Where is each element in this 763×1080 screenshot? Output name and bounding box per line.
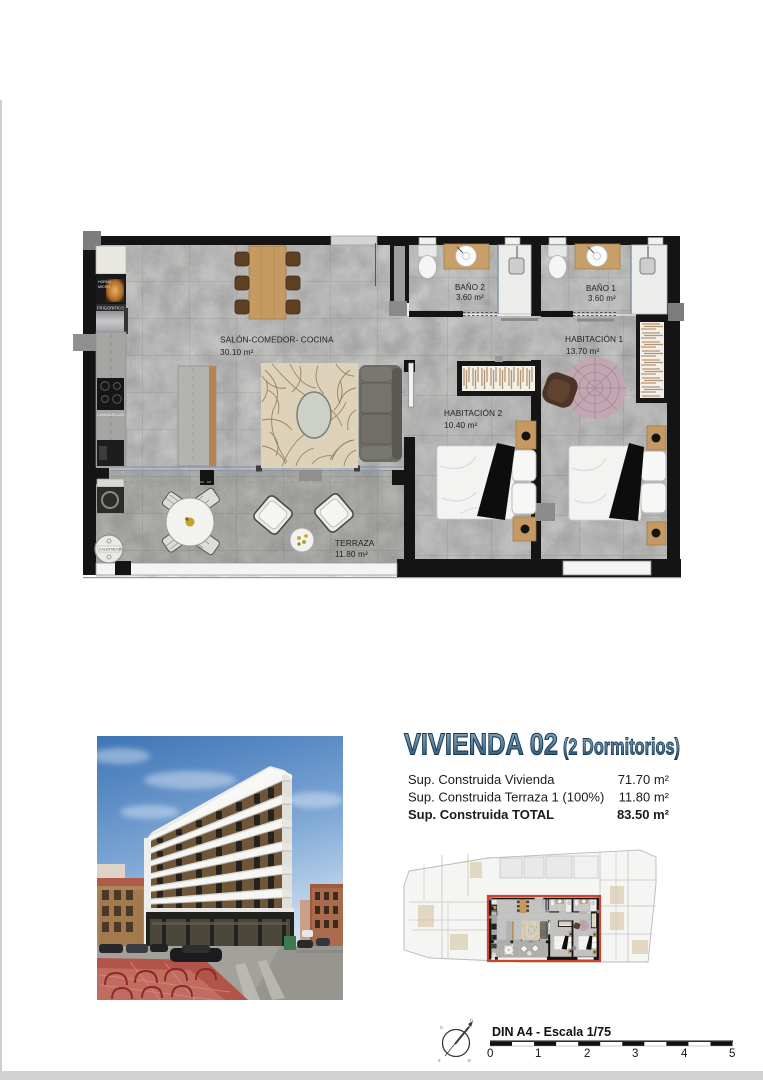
svg-text:MICRO: MICRO bbox=[98, 285, 110, 289]
svg-text:BAÑO 2: BAÑO 2 bbox=[455, 283, 485, 292]
svg-text:30.10 m²: 30.10 m² bbox=[220, 347, 254, 357]
svg-text:10.40 m²: 10.40 m² bbox=[444, 420, 478, 430]
svg-text:HORNO: HORNO bbox=[98, 280, 112, 284]
svg-text:5: 5 bbox=[729, 1048, 735, 1060]
svg-text:4: 4 bbox=[681, 1048, 688, 1060]
svg-text:13.70 m²: 13.70 m² bbox=[566, 346, 600, 356]
svg-text:3.60 m²: 3.60 m² bbox=[588, 294, 616, 303]
svg-text:TERRAZA: TERRAZA bbox=[335, 538, 375, 548]
svg-text:HABITACIÓN 2: HABITACIÓN 2 bbox=[444, 408, 502, 418]
svg-text:DIN A4 - Escala 1/75: DIN A4 - Escala 1/75 bbox=[492, 1025, 611, 1039]
svg-text:11.80 m²: 11.80 m² bbox=[619, 790, 670, 805]
svg-text:0: 0 bbox=[487, 1048, 493, 1060]
svg-text:Sup. Construida TOTAL: Sup. Construida TOTAL bbox=[408, 807, 554, 822]
svg-text:BAÑO 1: BAÑO 1 bbox=[586, 284, 616, 293]
svg-text:(2 Dormitorios): (2 Dormitorios) bbox=[563, 734, 680, 760]
svg-text:FRIGORIFICO: FRIGORIFICO bbox=[97, 306, 125, 311]
svg-text:CALENTADOR: CALENTADOR bbox=[99, 548, 122, 552]
svg-text:HABITACIÓN 1: HABITACIÓN 1 bbox=[565, 334, 623, 344]
svg-text:LAVAVAJILLAS: LAVAVAJILLAS bbox=[97, 412, 125, 417]
svg-text:Sup. Construida Terraza 1 (100: Sup. Construida Terraza 1 (100%) bbox=[408, 790, 604, 805]
svg-text:1: 1 bbox=[535, 1048, 541, 1060]
svg-text:SALÓN-COMEDOR- COCINA: SALÓN-COMEDOR- COCINA bbox=[220, 335, 334, 345]
svg-text:3: 3 bbox=[632, 1048, 638, 1060]
svg-text:VIVIENDA 02: VIVIENDA 02 bbox=[404, 728, 558, 762]
svg-text:Sup. Construida Vivienda: Sup. Construida Vivienda bbox=[408, 772, 555, 787]
svg-text:11.80 m²: 11.80 m² bbox=[335, 549, 368, 559]
svg-text:3.60 m²: 3.60 m² bbox=[456, 293, 484, 302]
svg-text:o: o bbox=[440, 1025, 443, 1031]
svg-text:2: 2 bbox=[584, 1048, 590, 1060]
svg-text:83.50 m²: 83.50 m² bbox=[617, 807, 670, 822]
svg-text:e: e bbox=[468, 1058, 471, 1064]
svg-text:n: n bbox=[470, 1018, 473, 1024]
svg-text:71.70 m²: 71.70 m² bbox=[618, 772, 670, 787]
